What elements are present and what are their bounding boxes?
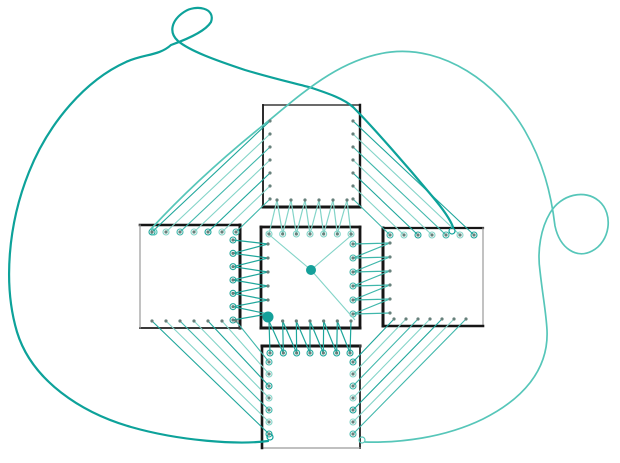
anchor-dot [322,232,325,235]
anchor-dot [231,318,234,321]
anchor-dot [336,232,339,235]
anchor-dot [351,132,354,135]
anchor-dot [268,184,271,187]
anchor-dot [295,319,298,322]
anchor-dot [267,432,270,435]
anchor-dot [192,230,195,233]
anchor-dot [444,233,447,236]
anchor-dot [392,317,395,320]
anchor-dot [351,197,354,200]
anchor-dot [351,420,354,423]
anchor-dot [295,351,298,354]
anchor-dot [267,396,270,399]
anchor-dot [206,319,209,322]
square-fill-right [383,228,483,326]
anchor-dot [388,269,391,272]
anchor-dot [345,198,348,201]
square-fill-center [261,227,360,328]
anchor-dot [267,420,270,423]
anchor-dot [266,270,269,273]
anchor-dot [192,319,195,322]
anchor-dot [231,305,234,308]
anchor-dot [266,284,269,287]
anchor-dot [351,284,354,287]
anchor-dot [402,233,405,236]
anchor-dot [416,233,419,236]
anchor-dot [268,197,271,200]
anchor-dot [150,319,153,322]
anchor-dot [351,184,354,187]
anchor-dot [351,396,354,399]
anchor-dot [348,351,351,354]
square-fill-bottom [262,346,360,448]
anchor-dot [266,256,269,259]
anchor-dot [351,360,354,363]
anchor-dot [351,256,354,259]
anchor-dot [308,319,311,322]
anchor-dot [267,408,270,411]
anchor-dot [268,132,271,135]
anchor-dot [178,230,181,233]
anchor-dot [267,360,270,363]
anchor-dot [430,233,433,236]
anchor-dot [349,319,352,322]
anchor-dot [440,317,443,320]
anchor-dot [267,372,270,375]
anchor-dot [220,319,223,322]
anchor-dot [388,255,391,258]
anchor-dot [266,298,269,301]
anchor-dot [268,351,271,354]
anchor-dot [234,230,237,233]
anchor-dot [322,319,325,322]
anchor-dot [281,232,284,235]
anchor-dot [351,171,354,174]
anchor-dot [351,145,354,148]
square-fill-left [140,225,240,328]
anchor-dot [458,233,461,236]
anchor-dot [266,242,269,245]
anchor-dot [282,351,285,354]
anchor-dot [428,317,431,320]
anchor-dot [388,241,391,244]
anchor-dot [303,198,306,201]
square-fill-top [263,105,360,207]
anchor-dot [335,351,338,354]
anchor-dot [388,233,391,236]
anchor-dot [231,292,234,295]
anchor-dot [388,311,391,314]
anchor-dot [416,317,419,320]
anchor-dot [404,317,407,320]
anchor-dot [351,119,354,122]
anchor-dot [267,232,270,235]
anchor-dot [268,119,271,122]
anchor-dot [351,270,354,273]
anchor-dot [231,238,234,241]
anchor-dot [234,319,237,322]
anchor-dot [295,232,298,235]
anchor-dot [150,230,153,233]
node-dot [263,312,274,323]
anchor-dot [268,158,271,161]
anchor-dot [351,384,354,387]
anchor-dot [336,319,339,322]
anchor-dot [220,230,223,233]
anchor-dot [351,298,354,301]
anchor-dot [289,198,292,201]
anchor-dot [452,317,455,320]
anchor-dot [351,408,354,411]
anchor-dot [349,232,352,235]
anchor-dot [268,145,271,148]
artwork-canvas [0,0,620,463]
anchor-dot [231,252,234,255]
anchor-dot [308,351,311,354]
anchor-dot [164,230,167,233]
anchor-dot [351,432,354,435]
anchor-dot [268,171,271,174]
anchor-dot [388,297,391,300]
node-dot [306,265,316,275]
anchor-dot [164,319,167,322]
anchor-dot [275,198,278,201]
anchor-dot [351,372,354,375]
anchor-dot [317,198,320,201]
anchor-dot [178,319,181,322]
anchor-dot [351,242,354,245]
anchor-dot [351,312,354,315]
anchor-dot [351,158,354,161]
anchor-dot [206,230,209,233]
anchor-dot [472,233,475,236]
generative-stitch-artwork [0,0,620,463]
anchor-dot [464,317,467,320]
anchor-dot [231,278,234,281]
anchor-dot [231,265,234,268]
anchor-dot [308,232,311,235]
anchor-dot [331,198,334,201]
anchor-dot [388,283,391,286]
anchor-dot [267,384,270,387]
anchor-dot [281,319,284,322]
anchor-dot [322,351,325,354]
